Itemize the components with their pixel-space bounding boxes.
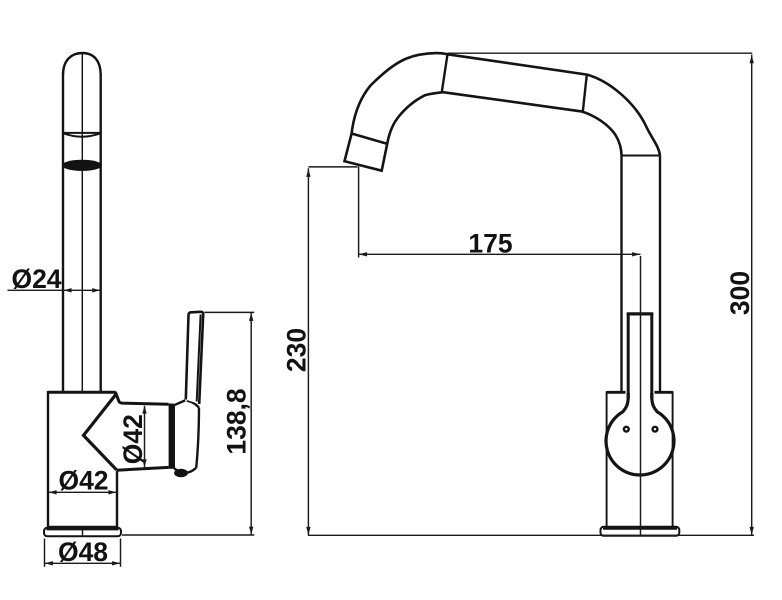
svg-text:175: 175 — [468, 229, 512, 259]
svg-text:300: 300 — [725, 271, 755, 315]
svg-text:Ø48: Ø48 — [58, 537, 108, 567]
svg-text:230: 230 — [282, 328, 312, 372]
svg-text:138,8: 138,8 — [221, 388, 251, 454]
svg-text:Ø42: Ø42 — [58, 466, 108, 496]
svg-text:Ø24: Ø24 — [11, 264, 61, 294]
svg-text:Ø42: Ø42 — [118, 414, 148, 464]
